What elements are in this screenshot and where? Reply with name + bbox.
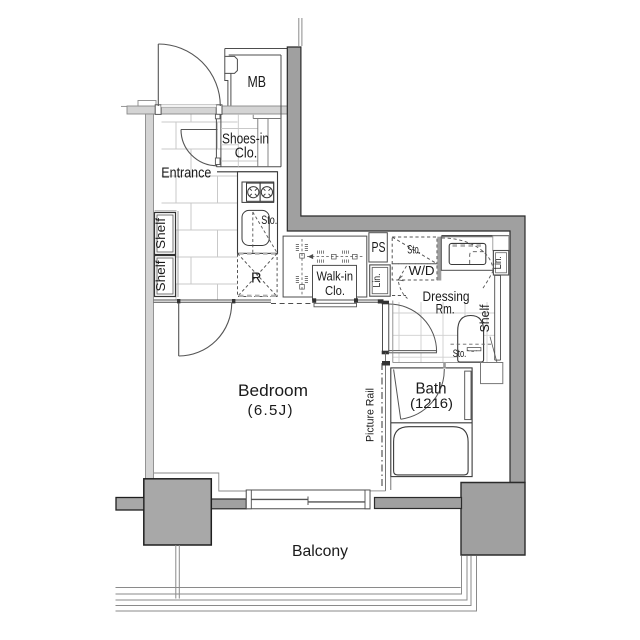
svg-text:Lin.: Lin. xyxy=(493,256,504,269)
svg-text:Entrance: Entrance xyxy=(161,165,211,182)
svg-text:Clo.: Clo. xyxy=(235,145,257,161)
svg-text:Shelf: Shelf xyxy=(154,260,168,292)
svg-text:Rm.: Rm. xyxy=(436,301,455,316)
svg-text:Lin.: Lin. xyxy=(371,274,383,288)
svg-text:Bedroom: Bedroom xyxy=(238,382,308,400)
svg-text:Walk-in: Walk-in xyxy=(317,269,354,283)
svg-text:Balcony: Balcony xyxy=(292,543,348,560)
svg-text:Picture Rail: Picture Rail xyxy=(365,388,377,442)
svg-text:Clo.: Clo. xyxy=(325,284,345,298)
svg-text:W/D: W/D xyxy=(409,263,435,278)
svg-text:Shelf: Shelf xyxy=(154,217,168,249)
svg-text:PS: PS xyxy=(372,239,386,256)
svg-text:MB: MB xyxy=(248,74,267,91)
svg-text:Sto.: Sto. xyxy=(407,242,421,256)
svg-text:(1216): (1216) xyxy=(410,395,453,411)
svg-text:R: R xyxy=(251,270,262,287)
svg-text:(6.5J): (6.5J) xyxy=(248,402,293,419)
svg-text:Sto.: Sto. xyxy=(453,348,467,360)
svg-text:Sto.: Sto. xyxy=(261,213,277,227)
svg-text:Shelf: Shelf xyxy=(478,304,492,333)
